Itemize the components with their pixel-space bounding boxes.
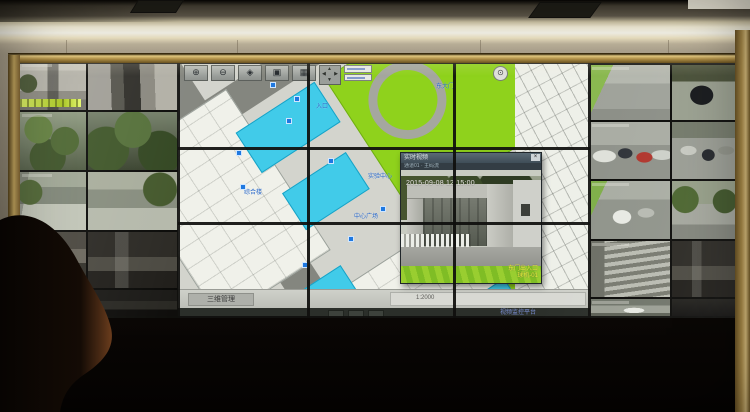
camera-feed[interactable] (590, 181, 670, 239)
popup-video: 2015-09-08 12:15:00 东门出入口 球机-01 (401, 170, 541, 283)
panel-bezel (177, 62, 180, 318)
camera-feed[interactable] (672, 181, 738, 239)
camera-feed[interactable] (672, 241, 738, 297)
map-label: 东大门 (436, 84, 454, 91)
osd-line: 球机-01 (508, 273, 538, 280)
panel-bezel (178, 222, 590, 225)
camera-marker-icon[interactable] (348, 236, 354, 242)
camera-marker-icon[interactable] (286, 118, 292, 124)
ceiling-vent (130, 0, 184, 13)
ceiling-vent (528, 2, 602, 18)
layers-icon[interactable]: ▦ (292, 65, 316, 81)
arrow-down-icon[interactable]: ▼ (327, 78, 332, 83)
pan-icon[interactable]: ◈ (238, 65, 262, 81)
ceiling-light-panel (688, 0, 750, 9)
map-label: 入口 (316, 104, 328, 111)
layer-list-panel[interactable] (344, 65, 372, 81)
zoom-in-icon[interactable]: ⊕ (184, 65, 208, 81)
zoom-out-icon[interactable]: ⊖ (211, 65, 235, 81)
video-timestamp: 2015-09-08 12:15:00 (406, 180, 475, 187)
popup-titlebar[interactable]: 实时视频 × (401, 153, 541, 163)
panel-bezel (178, 147, 590, 150)
camera-marker-icon[interactable] (328, 158, 334, 164)
arrow-up-icon[interactable]: ▲ (327, 67, 332, 72)
full-extent-icon[interactable]: ▣ (265, 65, 289, 81)
camera-feed[interactable] (672, 65, 738, 120)
panel-bezel (307, 62, 310, 318)
video-building (513, 180, 541, 252)
arrow-right-icon[interactable]: ▶ (334, 72, 338, 77)
wall-frame-top (8, 53, 742, 63)
map-toolbar: ⊕ ⊖ ◈ ▣ ▦ ▲ ▼ ◀ ▶ (184, 65, 372, 85)
status-tab[interactable]: 三维管理 (188, 293, 254, 306)
camera-feed[interactable] (590, 65, 670, 120)
popup-info-bar: 通道01 · 主码流 (401, 163, 541, 170)
camera-marker-icon[interactable] (380, 206, 386, 212)
live-video-popup[interactable]: 2015-09-08 12:15:00 东门出入口 球机-01 实时视频 × 通… (400, 152, 542, 284)
popup-info-text: 通道01 · 主码流 (404, 164, 439, 169)
camera-feed[interactable] (88, 112, 178, 170)
popup-title: 实时视频 (404, 155, 428, 161)
map-scale: 1:2000 (416, 295, 434, 301)
video-fence (401, 234, 471, 247)
camera-marker-icon[interactable] (236, 150, 242, 156)
panel-bezel (588, 62, 591, 318)
camera-feed[interactable] (590, 241, 670, 297)
video-window (521, 204, 530, 216)
camera-feed[interactable] (88, 62, 178, 110)
arrow-left-icon[interactable]: ◀ (322, 72, 326, 77)
camera-feed[interactable] (20, 62, 86, 110)
camera-grid-right (590, 65, 738, 318)
map-label: 综合楼 (244, 190, 262, 197)
control-room-photo: 入口 东大门 中心广场 综合楼 实验中心 ⊕ ⊖ ◈ ▣ ▦ ▲ ▼ ◀ ▶ (0, 0, 750, 412)
locate-icon[interactable]: ⊙ (493, 66, 508, 81)
camera-feed[interactable] (672, 122, 738, 179)
wall-frame-right (735, 30, 750, 412)
panel-bezel (453, 62, 456, 318)
osd-line: 东门出入口 (508, 266, 538, 273)
osd-alert-banner (20, 99, 81, 107)
video-road (401, 247, 541, 266)
map-label: 中心广场 (354, 214, 378, 221)
map-label: 实验中心 (368, 174, 392, 181)
map-statusbar: 三维管理 1:2000 (178, 289, 590, 308)
camera-feed[interactable] (20, 112, 86, 170)
camera-marker-icon[interactable] (240, 184, 246, 190)
close-icon[interactable]: × (531, 154, 540, 161)
layer-row[interactable] (344, 74, 372, 82)
layer-row[interactable] (344, 65, 372, 73)
map-pan-dpad[interactable]: ▲ ▼ ◀ ▶ (319, 65, 341, 85)
hand-silhouette (0, 180, 170, 412)
camera-marker-icon[interactable] (294, 96, 300, 102)
camera-feed[interactable] (590, 122, 670, 179)
video-osd-label: 东门出入口 球机-01 (508, 266, 538, 280)
